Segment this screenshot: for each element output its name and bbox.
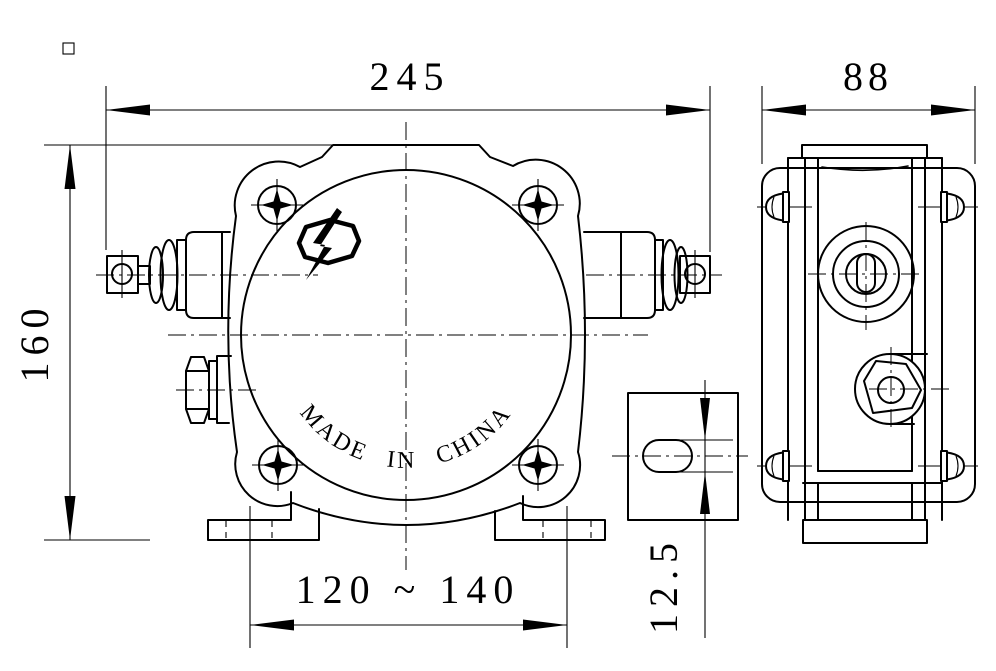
dim-mounting-span: 120 ~ 140 — [250, 567, 567, 631]
arrow-left-icon — [250, 620, 294, 631]
side-screw-bottom-left — [757, 451, 812, 481]
arrow-up-icon — [700, 472, 710, 514]
side-screw-top-left — [757, 192, 812, 222]
arrow-left-icon — [762, 105, 806, 116]
arrow-right-icon — [931, 105, 975, 116]
dim-160-label: 160 — [12, 302, 57, 383]
side-screw-bottom-right — [918, 451, 978, 481]
foot-right-outline — [495, 496, 605, 540]
sheet-corner-square — [63, 43, 74, 54]
corner-screw-top-right — [512, 179, 564, 231]
pull-cord-switch-technical-drawing: MADE IN CHINA — [0, 0, 996, 671]
dim-12-5-label: 12.5 — [641, 536, 686, 634]
arrow-right-icon — [666, 105, 710, 116]
dim-88-label: 88 — [843, 54, 893, 99]
hex-nut-boss — [855, 347, 952, 431]
base-plate — [803, 520, 927, 543]
arrow-down-icon — [700, 398, 710, 440]
lightning-logo-icon — [299, 208, 359, 280]
dim-245-label: 245 — [370, 54, 451, 99]
dim-120-140-label: 120 ~ 140 — [296, 567, 521, 612]
corner-screw-bottom-left — [252, 439, 304, 491]
arrow-right-icon — [523, 620, 567, 631]
foot-left-slot-hidden — [226, 521, 272, 539]
side-view — [757, 145, 978, 543]
side-screw-top-right — [918, 192, 978, 222]
corner-screw-top-left — [251, 179, 303, 231]
dim-overall-depth: 88 — [762, 54, 975, 164]
dim-overall-width: 245 — [106, 54, 710, 252]
drawing-sheet: MADE IN CHINA — [0, 0, 996, 671]
dim-slot-width: 12.5 — [641, 380, 733, 638]
corner-screw-bottom-right — [512, 439, 564, 491]
arrow-down-icon — [65, 496, 76, 540]
side-base — [803, 471, 942, 543]
slot-detail-view — [612, 393, 748, 520]
shaft-boss — [808, 222, 926, 330]
dim-245-extensions — [106, 86, 710, 252]
side-top-plate — [788, 145, 942, 158]
arrow-left-icon — [106, 105, 150, 116]
arrow-up-icon — [65, 145, 76, 189]
foot-left-outline — [208, 492, 319, 540]
